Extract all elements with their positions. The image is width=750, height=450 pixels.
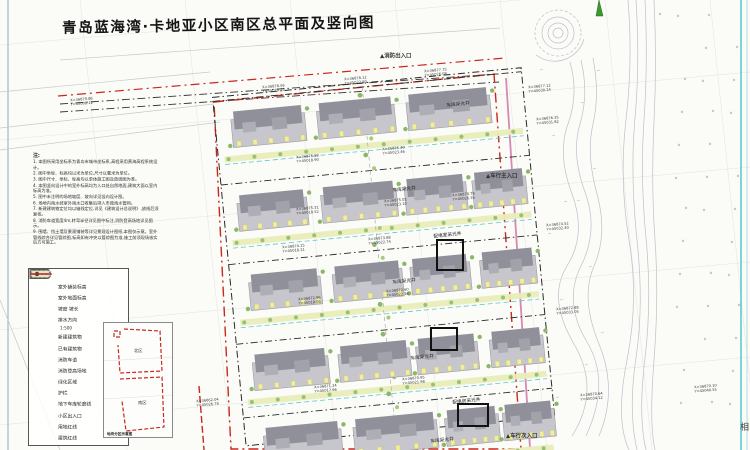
legend-item-label: 用地红线 xyxy=(58,423,77,430)
legend-item-label: 绿化区域 xyxy=(58,379,77,386)
legend-item-label: 室外铺装标高 xyxy=(58,283,87,290)
legend-item-3: 坡度 坡长 xyxy=(32,303,125,314)
legend-item-label: 护栏 xyxy=(58,390,68,397)
note-line-8: 8. 消防车道宽度4m,转弯半径详见图中标注,消防登高场地详见图示。 xyxy=(33,218,159,229)
legend-item-label: 建筑红线 xyxy=(58,435,77,442)
note-line-9: 9. 围墙、挡土墙及景观铺装等详见景观设计图纸,本图仅示意。室外管线综合详见管综… xyxy=(33,230,159,246)
legend-item-label: 地下车库轮廓线 xyxy=(58,401,91,408)
legend-item-label: 消防车道 xyxy=(58,356,77,363)
legend-item-label: 已有建筑物 xyxy=(58,345,82,352)
legend-scale-note: 1:500 xyxy=(60,326,106,330)
entrance-label: ▲消防出入口 xyxy=(380,52,412,60)
legend-item-label: 小区出入口 xyxy=(58,412,82,419)
notes-heading: 注: xyxy=(33,152,159,159)
edge-partial-char: 相 xyxy=(740,420,749,433)
note-line-7: 7. 新建建筑物定位均以轴线定位,详见《建筑设计总说明》,放线后须复核。 xyxy=(33,207,159,218)
site-plan-sheet: 青岛蓝海湾·卡地亚小区南区总平面及竖向图 注: 1. 本图所采用坐标系为青岛市城… xyxy=(0,0,750,450)
notes-block: 注: 1. 本图所采用坐标系为青岛市城市坐标系,高程采用黄海高程系统设计。2. … xyxy=(33,152,159,247)
note-line-4: 4. 本图竖向设计中的室外标高均为入口处自然地面,建筑大面以室内标高为准。 xyxy=(33,183,159,194)
inset-key-map: 北区 南区 地块分区示意图 xyxy=(103,322,173,438)
note-line-3: 3. 图中尺寸、坐标、标高均以单体施工图及放线图为准。 xyxy=(33,177,159,182)
inset-canvas xyxy=(104,323,172,437)
entrance-label: ▲车行主入口 xyxy=(486,172,518,180)
entrance-label: ▲车行次入口 xyxy=(506,432,538,440)
legend-item-label: 室外地面标高 xyxy=(58,294,87,301)
legend-item-label: 坡度 坡长 xyxy=(58,306,79,313)
note-line-1: 1. 本图所采用坐标系为青岛市城市坐标系,高程采用黄海高程系统设计。 xyxy=(33,160,159,171)
inset-caption: 地块分区示意图 xyxy=(107,431,132,436)
note-line-5: 5. 图中未注明的场地坡度、坡向详见竖向设计图。 xyxy=(33,195,159,200)
legend-item-1: 室外铺装标高 xyxy=(32,281,125,292)
legend-item-label: 新建建筑物 xyxy=(58,334,82,341)
north-marker-icon xyxy=(596,0,603,16)
legend-item-label: 排水方向 xyxy=(58,317,77,324)
legend-item-label: 消防登高场地 xyxy=(58,368,87,375)
note-line-6: 6. 场地内雨水经室外雨水口收集后排入市政雨水管网。 xyxy=(33,201,159,206)
inset-south-label: 南区 xyxy=(138,399,146,405)
note-line-2: 2. 图中坐标、标高均以米为单位,尺寸以毫米为单位。 xyxy=(33,171,159,176)
legend-item-2: 室外地面标高 xyxy=(32,292,125,303)
inset-north-label: 北区 xyxy=(134,347,142,353)
terrain-marks xyxy=(540,13,740,405)
